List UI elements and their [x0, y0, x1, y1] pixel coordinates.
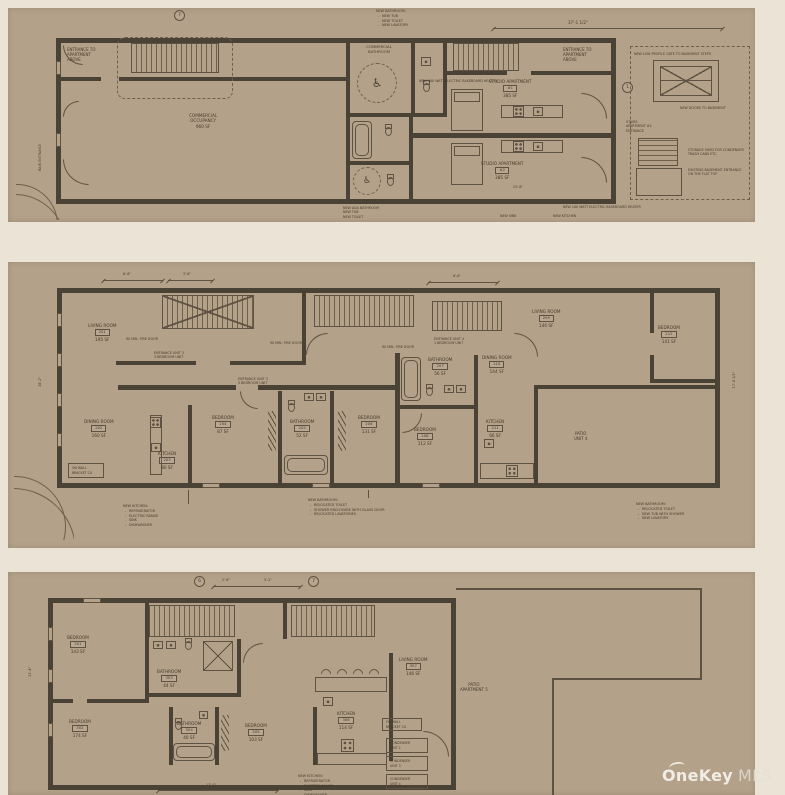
bed — [451, 89, 483, 131]
room-area: 146 SF — [539, 323, 553, 328]
room-label-dining-room: DINING ROOM 210 144 SF — [482, 355, 512, 374]
room-area: 174 SF — [73, 733, 87, 738]
dimension-line — [213, 586, 301, 587]
label-line: BATHROOM — [350, 50, 408, 55]
building-outline: ENTRANCE TO APARTMENT ABOVE COMMERCIAL O… — [56, 38, 616, 204]
room-number: 206 — [361, 421, 376, 428]
room-name: BEDROOM — [414, 427, 436, 432]
door-arc — [63, 45, 83, 65]
floor-plan-sheet: 7 NEW BATHROOM: NEW TUB NEW TOILET NEW L… — [0, 0, 785, 795]
room-area: 385 SF — [495, 175, 509, 180]
note-shed: STORAGE SHED FOR CONDENSER TRASH CANS ET… — [688, 148, 744, 157]
sink — [456, 385, 466, 393]
fire-door-label: 90 MIN. FIRE DOOR — [382, 345, 414, 349]
window — [57, 313, 62, 327]
exterior-stairs — [638, 138, 678, 166]
room-label-commercial: COMMERCIAL OCCUPANCY 960 SF — [189, 113, 217, 129]
dimension-text: 37'-1 1/2" — [568, 20, 588, 25]
leader-line — [368, 490, 369, 498]
room-name: STUDIO APARTMENT — [489, 79, 531, 84]
wall — [118, 385, 236, 390]
room-area: 131 SF — [362, 429, 376, 434]
label-line: UNIT 3 — [390, 764, 427, 768]
stairs — [149, 605, 235, 637]
room-number: 306 — [338, 717, 353, 724]
room-area: 66 SF — [489, 433, 501, 438]
wheelchair-icon: ♿ — [372, 76, 383, 90]
dimension-text: 25'-8" — [513, 185, 523, 189]
note-item: NEW LAVATORY — [376, 23, 408, 28]
door-arc — [514, 333, 538, 357]
wall — [346, 113, 415, 117]
heater-note: NEW 100 WATT ELECTRIC BASEBOARD HEATER — [419, 79, 497, 83]
wall — [116, 361, 196, 365]
building-outline: 90 MIN. FIRE DOOR 90 MIN. FIRE DOOR 90 M… — [57, 288, 720, 488]
room-name: BEDROOM — [358, 415, 380, 420]
dimension-text: 5'-2" — [264, 578, 272, 582]
entrance-unit-label: ENTRANCE UNIT 3 3 BEDROOM UNIT — [154, 351, 184, 360]
note-new-bathroom: NEW BATHROOM: NEW TUB NEW TOILET NEW LAV… — [376, 9, 408, 28]
stairs-apt2-label: STAIRS APARTMENT #2 ENTRANCE — [626, 120, 652, 133]
toilet — [385, 127, 392, 136]
sink — [533, 107, 543, 116]
door-arc — [63, 101, 79, 117]
window — [56, 133, 61, 147]
room-number: 210 — [489, 361, 504, 368]
room-area: 960 SF — [196, 124, 210, 129]
room-label-bathroom: BATHROOM 207 56 SF — [428, 357, 452, 376]
second-floor-plan-panel: 6'-6" 3'-6" 8'-6" 38'-2" 17'-8 1/2" 90 M… — [8, 262, 755, 548]
sink — [484, 439, 494, 448]
condenser-unit-box: CONDENSER UNIT 4 — [386, 774, 428, 789]
dimension-line — [158, 790, 278, 791]
detail-tag: 7 — [308, 576, 319, 587]
detail-tag: 7 — [174, 10, 185, 21]
sink — [199, 711, 208, 719]
room-area: 52 SF — [296, 433, 308, 438]
note-doors-basement: NEW DOORS TO BASEMENT — [680, 106, 726, 110]
stairs — [314, 295, 414, 327]
room-label-kitchen: KITCHEN 211 66 SF — [486, 419, 504, 438]
entrance-unit-label: ENTRANCE UNIT 4 1 BEDROOM UNIT — [434, 337, 464, 346]
room-number: 203 — [159, 457, 174, 464]
cellar-doors — [660, 66, 712, 96]
room-area: 144 SF — [490, 369, 504, 374]
wall — [283, 603, 287, 639]
wall — [650, 293, 654, 333]
wall — [415, 113, 447, 117]
room-name: KITCHEN — [158, 451, 176, 456]
room-name: KITCHEN — [486, 419, 504, 424]
note-ada-bathroom: NEW ADA BATHROOM NEW TUB NEW TOILET — [343, 206, 379, 219]
first-floor-plan-panel: 7 NEW BATHROOM: NEW TUB NEW TOILET NEW L… — [8, 8, 755, 222]
wall — [346, 117, 350, 199]
toilet — [426, 387, 433, 396]
bathtub — [173, 743, 215, 761]
room-name: LIVING ROOM — [88, 323, 117, 328]
room-area: 143 SF — [71, 649, 85, 654]
patio-line — [552, 678, 554, 795]
label-line: APARTMENT #2 — [626, 124, 652, 128]
wall — [409, 117, 413, 199]
label-line: APARTMENT 5 — [460, 687, 488, 692]
wall — [474, 355, 478, 483]
stairs — [432, 301, 502, 331]
wall — [87, 699, 149, 703]
sink — [316, 393, 326, 401]
room-area: 56 SF — [434, 371, 446, 376]
range — [513, 141, 524, 152]
room-label-kitchen: KITCHEN 306 114 SF — [337, 711, 355, 730]
sink — [153, 641, 163, 649]
sink — [444, 385, 454, 393]
label-line: ABOVE — [563, 57, 592, 62]
window — [202, 483, 220, 488]
label-line: UNIT 2 — [390, 746, 427, 750]
room-name: LIVING ROOM — [532, 309, 561, 314]
entrance-right-label: ENTRANCE TO APARTMENT ABOVE — [563, 47, 592, 63]
range — [150, 417, 161, 428]
note-item: DISHWASHER — [123, 523, 158, 528]
window — [57, 353, 62, 367]
room-number: 303 — [161, 675, 176, 682]
note-heater-bottom: NEW 100 WATT ELECTRIC BASEBOARD HEATER — [563, 205, 641, 209]
room-name: BEDROOM — [245, 723, 267, 728]
patio-label: PATIO UNIT 4 — [574, 431, 587, 441]
room-number: 205 — [294, 425, 309, 432]
room-name: DINING ROOM — [84, 419, 114, 424]
bathtub — [284, 455, 328, 475]
bracket-note-box: ON WALL BRACKET CU — [382, 718, 422, 731]
wall — [395, 353, 400, 483]
label-line: ON THE FLAT TOP — [688, 172, 741, 176]
sink — [533, 142, 543, 151]
room-name: KITCHEN — [337, 711, 355, 716]
room-name: BATHROOM — [290, 419, 314, 424]
room-number: 208 — [417, 433, 432, 440]
condenser-unit-box: CONDENSER UNIT 2 — [386, 738, 428, 753]
window — [56, 61, 61, 75]
room-label-bedroom: BEDROOM 305 103 SF — [245, 723, 267, 742]
door-arc — [240, 391, 258, 409]
stairs — [453, 43, 519, 71]
wall — [330, 391, 334, 483]
room-label-bedroom: BEDROOM 204 87 SF — [212, 415, 234, 434]
kitchen-island — [315, 677, 387, 692]
room-area: 112 SF — [418, 441, 432, 446]
patio-line — [456, 588, 702, 590]
note-new-kitchen: NEW KITCHEN: REFRIGERATOR ELECTRIC RANGE… — [123, 504, 158, 528]
note-item: RELOCATED LAVATORIES — [308, 512, 385, 517]
room-area: 40 SF — [183, 735, 195, 740]
note-new-bathroom: NEW BATHROOM: RELOCATED TOILET NEW TUB W… — [636, 502, 684, 521]
room-area: 195 SF — [95, 337, 109, 342]
room-number: 204 — [215, 421, 230, 428]
patio-line — [700, 588, 702, 680]
room-area: 44 SF — [163, 683, 175, 688]
window — [57, 433, 62, 447]
window — [422, 483, 440, 488]
room-label-bedroom: BEDROOM 208 112 SF — [414, 427, 436, 446]
note-basement-gate: NEW LOW PROFILE GATE TO BASEMENT STEPS — [634, 52, 711, 56]
room-label-living-room: LIVING ROOM 307 146 SF — [399, 657, 428, 676]
label-line: 3 BEDROOM UNIT — [154, 355, 184, 359]
door-arc — [63, 159, 89, 185]
window — [48, 669, 53, 683]
room-name: BATHROOM — [177, 721, 201, 726]
room-area: 160 SF — [92, 433, 106, 438]
kitchen-counter — [501, 105, 563, 118]
room-label-bedroom: BEDROOM 212 141 SF — [658, 325, 680, 344]
toilet — [185, 641, 192, 650]
room-number: 202 — [91, 425, 106, 432]
wall — [149, 693, 239, 697]
room-name: BATHROOM — [157, 669, 181, 674]
closet-doors — [338, 411, 346, 451]
note-new-kitchen: NEW KITCHEN: REFRIGERATOR ELECTRIC RANGE… — [298, 774, 333, 795]
room-area: 114 SF — [339, 725, 353, 730]
closet-doors — [268, 411, 276, 451]
dimension-text: 3'-6" — [183, 272, 191, 276]
dimension-text: 31'-4" — [28, 667, 32, 677]
wall — [534, 385, 538, 483]
room-area: 385 SF — [503, 93, 517, 98]
ada-turning-circle: ♿ — [353, 167, 381, 195]
room-number: 301 — [70, 641, 85, 648]
detail-tag: 6 — [194, 576, 205, 587]
commercial-bathroom-label: COMMERCIAL BATHROOM — [350, 45, 408, 55]
room-name: BEDROOM — [212, 415, 234, 420]
window — [312, 483, 330, 488]
room-number: #2 — [495, 167, 509, 174]
fire-door-label: 90 MIN. FIRE DOOR — [270, 341, 302, 345]
line — [660, 80, 712, 81]
note-basement-entrance: EXISTING BASEMENT ENTRANCE ON THE FLAT T… — [688, 168, 741, 177]
sidewalk-arcs — [14, 468, 74, 540]
detail-tag: 1 — [622, 82, 633, 93]
toilet — [288, 403, 295, 412]
wheelchair-icon: ♿ — [363, 176, 371, 186]
wall — [237, 639, 241, 697]
stairs — [291, 605, 375, 637]
note-new-kitchen: NEW KITCHEN — [553, 214, 576, 218]
window — [83, 598, 101, 603]
room-name: LIVING ROOM — [399, 657, 428, 662]
dimension-line — [168, 280, 213, 281]
wall — [650, 355, 654, 381]
room-number: 201 — [95, 329, 110, 336]
wall — [650, 379, 715, 383]
label-line: UNIT 4 — [574, 436, 587, 441]
wall — [346, 161, 413, 165]
label-line: BRACKET CU — [386, 725, 421, 729]
note-new-sink: NEW SINK — [500, 214, 517, 218]
door-arc — [581, 157, 607, 183]
wall — [447, 71, 507, 75]
sink — [166, 641, 176, 649]
fire-door-label: 90 MIN. FIRE DOOR — [126, 337, 158, 341]
room-name: DINING ROOM — [482, 355, 512, 360]
room-label-studio-1: STUDIO APARTMENT #1 385 SF — [489, 79, 531, 98]
wall — [188, 405, 192, 483]
room-label-bedroom: BEDROOM 301 143 SF — [67, 635, 89, 654]
shower — [203, 641, 233, 671]
label-line: BRACKET CU — [72, 471, 103, 475]
label-line: UNIT 4 — [390, 782, 427, 786]
window — [48, 627, 53, 641]
toilet — [423, 83, 430, 92]
room-label-studio-2: STUDIO APARTMENT #2 385 SF — [481, 161, 523, 180]
stool — [353, 669, 363, 674]
room-area: 87 SF — [217, 429, 229, 434]
room-label-bedroom: BEDROOM 302 174 SF — [69, 719, 91, 738]
wall — [53, 699, 73, 703]
third-floor-plan-panel: 6 2'-8" 5'-2" 7 31'-4" 17'-0" BEDROOM 30… — [8, 572, 755, 795]
room-area: 141 SF — [662, 339, 676, 344]
dimension-text: 8'-6" — [453, 274, 461, 278]
door-arc — [243, 643, 263, 663]
watermark-suffix: MLS — [738, 766, 772, 785]
door-arc — [581, 93, 607, 119]
dimension-text: 38'-2" — [38, 377, 42, 387]
stool — [369, 669, 379, 674]
sink — [323, 697, 333, 706]
note-item: NEW LAVATORY — [636, 516, 684, 521]
room-label-bathroom: BATHROOM 304 40 SF — [177, 721, 201, 740]
sink — [304, 393, 314, 401]
label-line: 1 BEDROOM UNIT — [434, 341, 464, 345]
room-number: 211 — [487, 425, 502, 432]
sidewalk-arcs — [16, 178, 64, 220]
note-new-bathroom: NEW BATHROOM: RELOCATED TOILET SHOWER EN… — [308, 498, 385, 517]
room-label-living-room: LIVING ROOM 201 195 SF — [88, 323, 117, 342]
window — [48, 723, 53, 737]
stool — [337, 669, 347, 674]
dimension-text: 17'-8 1/2" — [732, 372, 736, 388]
range — [506, 465, 518, 477]
room-area: 146 SF — [406, 671, 420, 676]
room-label-bathroom: BATHROOM 205 52 SF — [290, 419, 314, 438]
kitchen-counter — [317, 753, 387, 765]
room-name: STUDIO APARTMENT — [481, 161, 523, 166]
patio-line — [552, 678, 702, 680]
room-number: 212 — [661, 331, 676, 338]
skylight-dashed-outline — [117, 37, 233, 99]
range — [341, 739, 354, 752]
room-area: 103 SF — [249, 737, 263, 742]
room-number: 305 — [248, 729, 263, 736]
room-number: 302 — [72, 725, 87, 732]
stool — [321, 669, 331, 674]
range — [513, 106, 524, 117]
room-name: BATHROOM — [428, 357, 452, 362]
main-entrance-label: MAIN ENTRANCE — [38, 144, 42, 171]
sink — [421, 57, 431, 66]
label-line: NEW TOILET — [343, 215, 379, 219]
room-label-bedroom: BEDROOM 206 131 SF — [358, 415, 380, 434]
dimension-text: 2'-8" — [222, 578, 230, 582]
stairs — [162, 295, 254, 329]
window — [57, 393, 62, 407]
bathtub — [352, 121, 372, 159]
room-name: BEDROOM — [658, 325, 680, 330]
room-number: 304 — [181, 727, 196, 734]
patio-label: PATIO APARTMENT 5 — [460, 682, 488, 692]
room-name: BEDROOM — [67, 635, 89, 640]
room-name: BEDROOM — [69, 719, 91, 724]
door-arc — [306, 333, 328, 355]
toilet — [387, 177, 394, 186]
arc-line — [14, 488, 74, 540]
dimension-text: 6'-6" — [123, 272, 131, 276]
leader-line — [188, 490, 189, 504]
bathtub — [401, 357, 421, 401]
room-number: 207 — [432, 363, 447, 370]
wall — [258, 385, 395, 390]
condenser-unit-box: CONDENSER UNIT 3 — [386, 756, 428, 771]
wall — [230, 361, 306, 365]
room-label-dining-room: DINING ROOM 202 160 SF — [84, 419, 114, 438]
kitchen-counter — [501, 140, 563, 153]
closet-doors — [221, 715, 229, 751]
wall — [411, 133, 611, 138]
onekey-mls-watermark: OneKeyMLS — [662, 766, 772, 785]
room-number: 307 — [406, 663, 421, 670]
room-number: 209 — [539, 315, 554, 322]
room-number: #1 — [503, 85, 517, 92]
wall — [215, 707, 219, 765]
stair-landing — [636, 168, 682, 196]
wall — [278, 391, 282, 483]
room-label-bathroom: BATHROOM 303 44 SF — [157, 669, 181, 688]
room-label-kitchen: KITCHEN 203 80 SF — [158, 451, 176, 470]
wall — [531, 71, 611, 75]
label-line: TRASH CANS ETC. — [688, 152, 744, 156]
room-area: 80 SF — [161, 465, 173, 470]
wall — [400, 405, 476, 409]
bed — [451, 143, 483, 185]
dimension-line — [103, 280, 163, 281]
wall — [537, 385, 715, 389]
dimension-line — [428, 282, 498, 283]
ada-turning-circle: ♿ — [357, 63, 397, 103]
label-line: ENTRANCE — [626, 129, 652, 133]
dimension-line — [493, 28, 723, 29]
wall — [411, 43, 415, 117]
wall — [61, 77, 101, 81]
room-label-living-room: LIVING ROOM 209 146 SF — [532, 309, 561, 328]
